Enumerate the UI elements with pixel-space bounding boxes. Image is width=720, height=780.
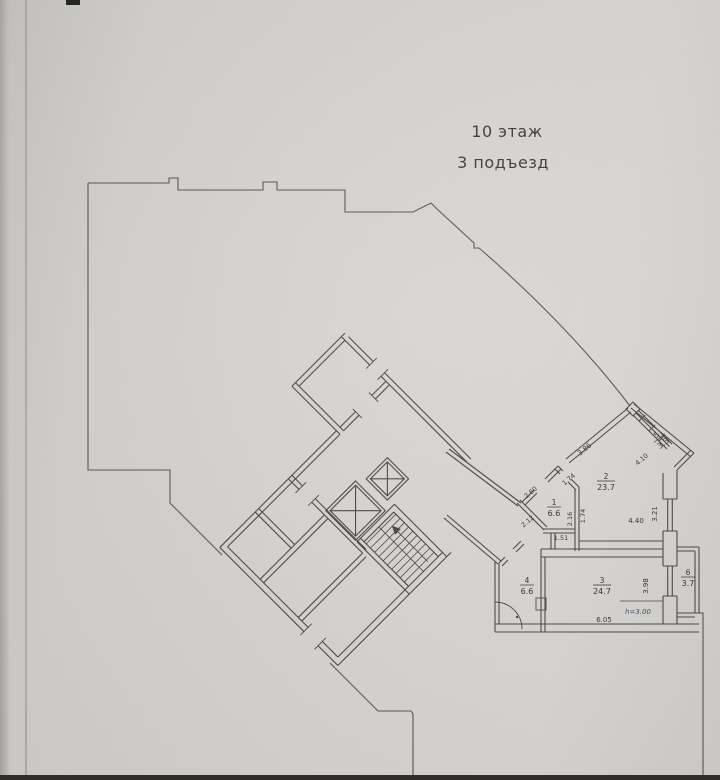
room-6-area: 3.7 [682, 579, 695, 588]
dim-2-60: 2.60 [523, 485, 539, 500]
dim-6-05: 6.05 [596, 616, 612, 624]
entrance-title: 3 подъезд [457, 153, 549, 172]
dim-4-10: 4.10 [634, 452, 650, 467]
room-label-6: 6 3.7 [681, 568, 695, 588]
room-label-1: 1 6.6 [547, 498, 561, 518]
drain-dot [516, 616, 518, 618]
door-opening-ticks [200, 358, 491, 649]
scan-edge-bottom [0, 775, 720, 780]
building-perimeter-outline [88, 178, 703, 776]
dim-3-21: 3.21 [651, 506, 659, 522]
dim-1-74-vert: 1.74 [579, 509, 587, 523]
stair-elevator-core [172, 330, 511, 669]
room-6-number: 6 [686, 568, 691, 577]
room-3-number: 3 [600, 576, 605, 585]
corridor-walls [444, 449, 521, 564]
room-4-number: 4 [525, 576, 530, 585]
dim-3-86: 3.86 [576, 441, 594, 457]
room-label-2: 2 23.7 [597, 472, 615, 492]
room-2-number: 2 [604, 472, 609, 481]
ceiling-height-note: h=3.00 [625, 608, 651, 616]
dim-1-74-door: 1.74 [561, 472, 577, 487]
floor-plan-drawing: 10 этаж 3 подъезд [0, 0, 720, 780]
room-2-area: 23.7 [597, 483, 615, 492]
room-1-area: 6.6 [548, 509, 561, 518]
elevator-shaft-small [366, 458, 408, 500]
room-1-number: 1 [552, 498, 557, 507]
room-4-area: 6.6 [521, 587, 534, 596]
elevator-shaft-large [326, 481, 385, 540]
room-label-3: 3 24.7 [593, 576, 611, 596]
dim-2-12: 2.12 [520, 514, 536, 529]
scanned-floor-plan-page: 10 этаж 3 подъезд [0, 0, 720, 780]
dim-2-16: 2.16 [566, 512, 574, 526]
room-3-area: 24.7 [593, 587, 611, 596]
dim-4-40: 4.40 [628, 517, 644, 525]
dim-1-51: 1.51 [554, 534, 568, 542]
elevator-shaft-large-lines [326, 481, 385, 540]
elevator-shaft-small-lines [366, 458, 408, 500]
floor-title: 10 этаж [471, 122, 542, 141]
dim-3-98: 3.98 [642, 578, 650, 594]
room-label-4: 4 6.6 [520, 576, 534, 596]
